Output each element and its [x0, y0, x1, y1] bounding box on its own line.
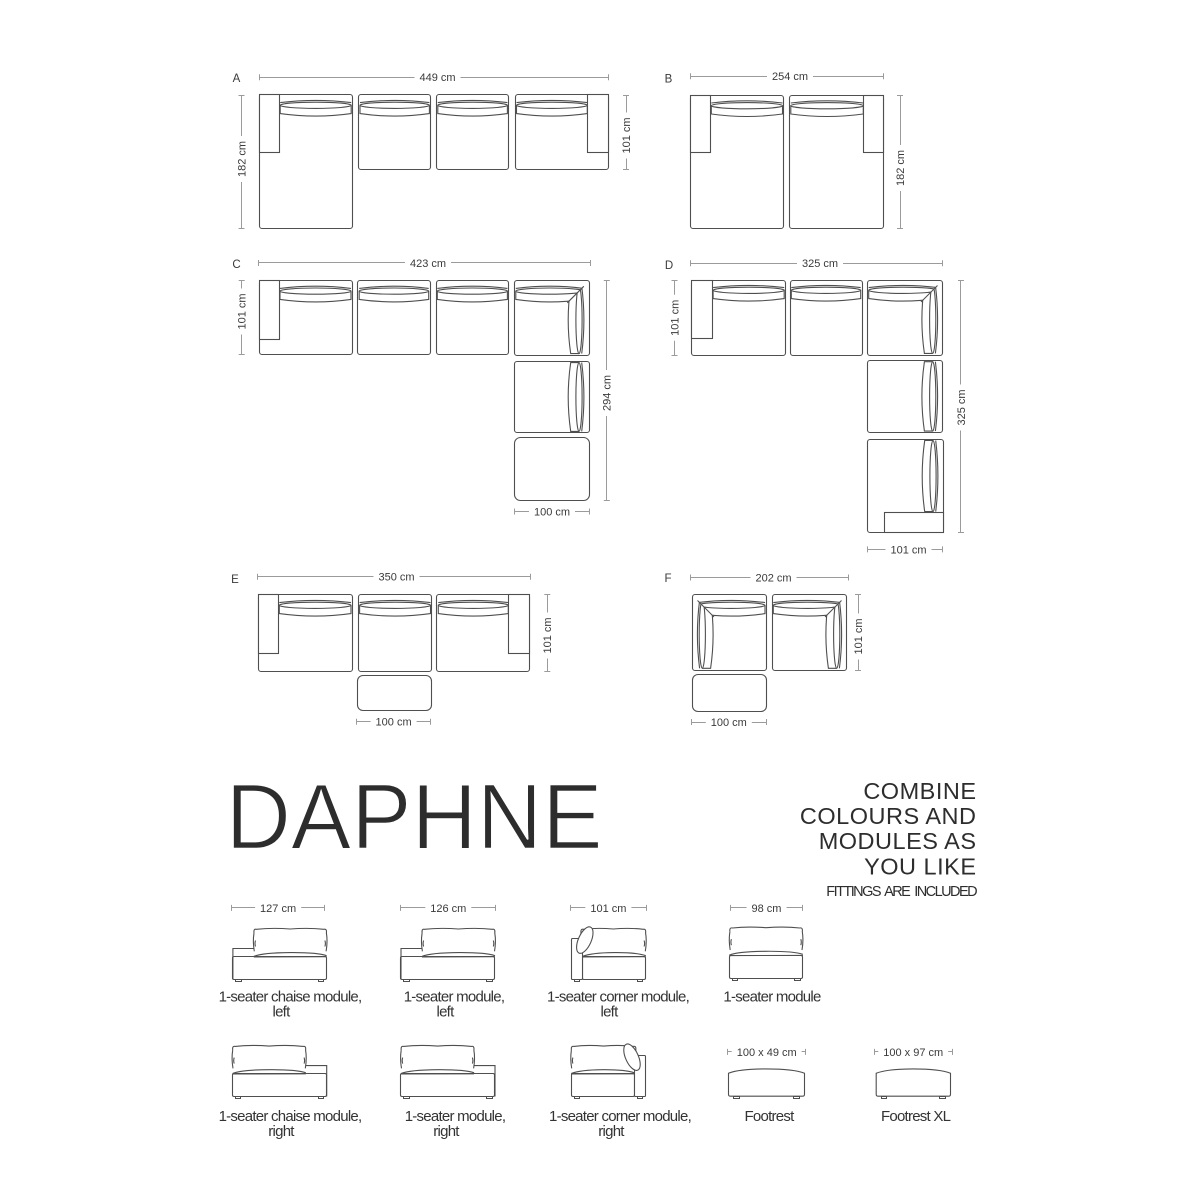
svg-text:100 cm: 100 cm	[711, 717, 747, 729]
svg-text:right: right	[598, 1123, 625, 1140]
svg-text:COLOURS AND: COLOURS AND	[800, 803, 977, 829]
svg-text:left: left	[436, 1004, 455, 1021]
svg-text:126 cm: 126 cm	[430, 903, 466, 915]
svg-text:127 cm: 127 cm	[260, 903, 296, 915]
svg-text:325 cm: 325 cm	[956, 389, 968, 425]
svg-text:101 cm: 101 cm	[590, 903, 626, 915]
svg-text:D: D	[665, 260, 673, 272]
svg-text:350 cm: 350 cm	[378, 572, 414, 584]
svg-text:MODULES AS: MODULES AS	[819, 828, 977, 854]
svg-text:449 cm: 449 cm	[419, 72, 455, 84]
svg-text:294 cm: 294 cm	[602, 375, 614, 411]
svg-text:Footrest: Footrest	[744, 1108, 795, 1125]
svg-text:98 cm: 98 cm	[752, 903, 782, 915]
svg-text:1-seater chaise module,: 1-seater chaise module,	[219, 988, 362, 1005]
svg-text:100 x 97 cm: 100 x 97 cm	[883, 1047, 943, 1059]
svg-text:182 cm: 182 cm	[236, 141, 248, 177]
svg-text:Footrest XL: Footrest XL	[881, 1108, 951, 1125]
svg-text:B: B	[665, 74, 673, 86]
svg-text:101 cm: 101 cm	[237, 293, 249, 329]
svg-text:101 cm: 101 cm	[621, 117, 633, 153]
svg-text:254 cm: 254 cm	[772, 71, 808, 83]
svg-text:202 cm: 202 cm	[755, 572, 791, 584]
svg-text:325 cm: 325 cm	[802, 258, 838, 270]
svg-text:COMBINE: COMBINE	[863, 778, 976, 804]
svg-text:E: E	[231, 574, 239, 586]
svg-text:DAPHNE: DAPHNE	[226, 765, 603, 869]
svg-text:101 cm: 101 cm	[669, 300, 681, 336]
svg-text:right: right	[268, 1123, 295, 1140]
svg-text:101 cm: 101 cm	[542, 617, 554, 653]
svg-text:100 x 49 cm: 100 x 49 cm	[737, 1047, 797, 1059]
svg-text:left: left	[600, 1004, 619, 1021]
svg-text:100 cm: 100 cm	[376, 717, 412, 729]
svg-text:F: F	[664, 573, 671, 585]
svg-text:101 cm: 101 cm	[890, 544, 926, 556]
svg-text:FITTINGS ARE INCLUDED: FITTINGS ARE INCLUDED	[826, 884, 977, 900]
svg-text:right: right	[433, 1123, 460, 1140]
svg-text:1-seater module,: 1-seater module,	[404, 988, 505, 1005]
svg-text:YOU LIKE: YOU LIKE	[864, 853, 976, 879]
svg-text:100 cm: 100 cm	[534, 506, 570, 518]
svg-text:C: C	[232, 259, 240, 271]
svg-text:left: left	[272, 1004, 291, 1021]
svg-text:1-seater corner module,: 1-seater corner module,	[547, 988, 689, 1005]
svg-text:101 cm: 101 cm	[853, 618, 865, 654]
svg-text:182 cm: 182 cm	[895, 150, 907, 186]
svg-text:A: A	[233, 73, 241, 85]
svg-text:1-seater module: 1-seater module	[723, 988, 821, 1005]
svg-text:423 cm: 423 cm	[410, 258, 446, 270]
